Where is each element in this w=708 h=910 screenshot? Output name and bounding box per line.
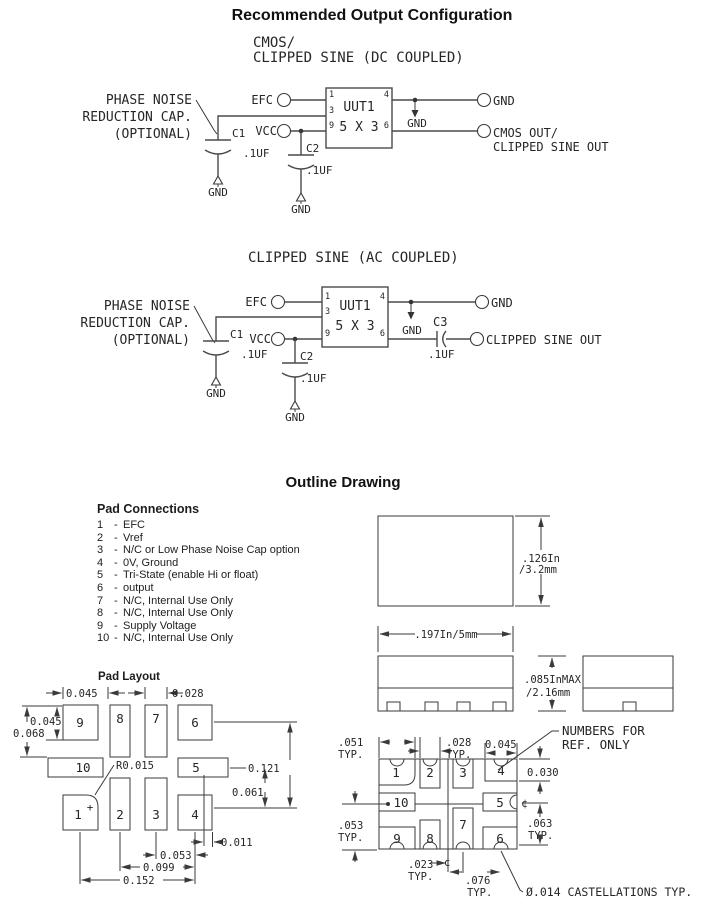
pad-desc: Vref <box>123 532 143 545</box>
dash: - <box>114 620 123 633</box>
pad-desc: 0V, Ground <box>123 557 178 570</box>
pad-1-number: 1 <box>74 807 82 822</box>
dim-pitch-b: 0.099 <box>143 862 175 874</box>
pin3-label: 3 <box>325 307 330 317</box>
dim-width: .197In/5mm <box>414 629 477 641</box>
pad-num: 6 <box>97 582 114 595</box>
dash: - <box>114 532 123 545</box>
c2-gnd-label: GND <box>291 203 311 216</box>
schematic-ac-drawing: EFC UUT1 5 X 3 1 3 9 4 6 C1 .1UF GND VCC <box>194 287 602 424</box>
pad-connection-row: 1-EFC <box>97 519 300 532</box>
junction-dot <box>409 300 414 305</box>
pad-5-number: 5 <box>192 760 200 775</box>
dim-045: 0.045 <box>485 739 517 751</box>
page-title: Recommended Output Configuration <box>18 7 708 25</box>
dash: - <box>114 632 123 645</box>
pad-connection-row: 9-Supply Voltage <box>97 620 300 633</box>
pad-num: 5 <box>97 569 114 582</box>
pad-10-number: 10 <box>393 795 408 810</box>
schematic-dc-coupled: CMOS/ CLIPPED SINE (DC COUPLED) PHASE NO… <box>0 30 708 237</box>
dim-063: .063 <box>527 818 552 830</box>
efc-label: EFC <box>251 93 273 107</box>
dim-051: .051 <box>338 737 363 749</box>
pad-2-number: 2 <box>426 765 434 780</box>
ac-note-line2: REDUCTION CAP. <box>80 316 190 331</box>
dim-thickness-in: .085InMAX <box>524 674 582 686</box>
efc-terminal <box>278 94 291 107</box>
gnd-terminal <box>476 296 489 309</box>
pin6-label: 6 <box>380 329 385 339</box>
c1-label: C1 <box>230 328 243 341</box>
pad-9-number: 9 <box>76 715 84 730</box>
pad-connection-row: 5-Tri-State (enable Hi or float) <box>97 569 300 582</box>
c2-value: .1UF <box>300 372 327 385</box>
dc-note-line3: (OPTIONAL) <box>114 127 192 142</box>
outline-views: .126In /3.2mm .197In/5mm .085InMAX /2.16… <box>360 510 708 720</box>
pin4-label: 4 <box>384 90 389 100</box>
dim-height-mm: /3.2mm <box>519 564 557 576</box>
pad-3-number: 3 <box>459 765 467 780</box>
c1-value: .1UF <box>241 348 268 361</box>
c2-label: C2 <box>306 142 319 155</box>
pad-3 <box>145 778 167 830</box>
pad-connection-row: 2-Vref <box>97 532 300 545</box>
pad-num: 9 <box>97 620 114 633</box>
c2-label: C2 <box>300 350 313 363</box>
dim-corner-radius: R0.015 <box>116 760 154 772</box>
pad-connection-row: 6-output <box>97 582 300 595</box>
dim-pitch-a: 0.053 <box>160 850 192 862</box>
ac-subtitle: CLIPPED SINE (AC COUPLED) <box>248 250 459 266</box>
pad-layout: Pad Layout 9 8 7 6 10 5 1 + 2 3 4 <box>0 665 320 910</box>
pad-connection-row: 3-N/C or Low Phase Noise Cap option <box>97 544 300 557</box>
pad-connections-heading: Pad Connections <box>97 502 300 516</box>
pad-7-number: 7 <box>459 817 467 832</box>
ground-symbol <box>214 176 223 184</box>
dim-pad-gap: 0.028 <box>172 688 204 700</box>
dim-076-typ: TYP. <box>467 887 492 899</box>
pad-connection-row: 4-0V, Ground <box>97 557 300 570</box>
dim-pitch-c: 0.152 <box>123 875 155 887</box>
uut-size-label: 5 X 3 <box>335 319 374 334</box>
output-terminal <box>478 125 491 138</box>
pad-desc: Tri-State (enable Hi or float) <box>123 569 258 582</box>
note-numbers-line2: REF. ONLY <box>562 737 630 752</box>
rail-gnd-label: GND <box>402 324 422 337</box>
pad-num: 3 <box>97 544 114 557</box>
dim-028-typ: TYP. <box>446 749 471 761</box>
uut-box <box>326 88 392 148</box>
package-side-view: .197In/5mm .085InMAX /2.16mm <box>378 626 673 711</box>
pad-desc: N/C or Low Phase Noise Cap option <box>123 544 300 557</box>
dc-subtitle-line1: CMOS/ <box>253 35 295 51</box>
dim-thickness-mm: /2.16mm <box>526 687 570 699</box>
c1-label: C1 <box>232 127 245 140</box>
dim-pad-height: 0.045 <box>30 716 62 728</box>
pad-8-number: 8 <box>116 711 124 726</box>
pin6-label: 6 <box>384 121 389 131</box>
pad-num: 4 <box>97 557 114 570</box>
c3-value: .1UF <box>428 348 455 361</box>
dc-output-label-line1: CMOS OUT/ <box>493 126 558 140</box>
dim-span-right: 0.121 <box>248 763 280 775</box>
dash: - <box>114 607 123 620</box>
pad-desc: N/C, Internal Use Only <box>123 632 233 645</box>
dc-note-line1: PHASE NOISE <box>106 93 192 108</box>
note-castellations: Ø.014 CASTELLATIONS TYP. <box>526 885 692 899</box>
dash: - <box>114 569 123 582</box>
dc-output-label-line2: CLIPPED SINE OUT <box>493 140 609 154</box>
pad-5-number: 5 <box>496 795 504 810</box>
pin3-label: 3 <box>329 106 334 116</box>
dim-pad-width: 0.045 <box>66 688 98 700</box>
package-top-view: .126In /3.2mm <box>378 516 560 606</box>
ground-symbol <box>297 193 306 201</box>
ground-symbol <box>291 401 300 409</box>
ground-symbol <box>212 377 221 385</box>
pad-layout-heading: Pad Layout <box>98 671 160 683</box>
vcc-label: VCC <box>249 332 271 346</box>
efc-label: EFC <box>245 295 267 309</box>
schematic-ac-coupled: CLIPPED SINE (AC COUPLED) PHASE NOISE RE… <box>0 245 708 437</box>
uut-label: UUT1 <box>339 299 370 314</box>
pad-desc: output <box>123 582 154 595</box>
pad-8-number: 8 <box>426 831 434 846</box>
c1-gnd-label: GND <box>206 387 226 400</box>
pin9-label: 9 <box>325 329 330 339</box>
pad-3-number: 3 <box>152 807 160 822</box>
pad-desc: Supply Voltage <box>123 620 196 633</box>
pad-1-number: 1 <box>392 765 400 780</box>
vcc-terminal <box>272 333 285 346</box>
pad-9-number: 9 <box>393 831 401 846</box>
pad-num: 2 <box>97 532 114 545</box>
dim-023: .023 <box>408 859 433 871</box>
dim-023-typ: TYP. <box>408 871 433 883</box>
pad-num: 1 <box>97 519 114 532</box>
c1-value: .1UF <box>243 147 270 160</box>
pad-desc: N/C, Internal Use Only <box>123 595 233 608</box>
rail-gnd-label: GND <box>407 117 427 130</box>
pad-connection-row: 7-N/C, Internal Use Only <box>97 595 300 608</box>
dim-span-mid: 0.061 <box>232 787 264 799</box>
pad-connections: Pad Connections 1-EFC 2-Vref 3-N/C or Lo… <box>97 502 300 645</box>
pad-desc: EFC <box>123 519 145 532</box>
dim-030: 0.030 <box>527 767 559 779</box>
gnd-terminal-label: GND <box>493 94 515 108</box>
pad-desc: N/C, Internal Use Only <box>123 607 233 620</box>
pad-10-leader-dot <box>386 802 390 806</box>
dash: - <box>114 519 123 532</box>
dim-028: .028 <box>446 737 471 749</box>
vcc-label: VCC <box>255 124 277 138</box>
efc-terminal <box>272 296 285 309</box>
junction-dot <box>413 98 418 103</box>
pad-6-number: 6 <box>191 715 199 730</box>
pad-4-number: 4 <box>191 807 199 822</box>
uut-box <box>322 287 388 347</box>
pin9-label: 9 <box>329 121 334 131</box>
pad-connection-row: 8-N/C, Internal Use Only <box>97 607 300 620</box>
dim-051-typ: TYP. <box>338 749 363 761</box>
pin1-label: 1 <box>325 292 330 302</box>
pad-6-number: 6 <box>496 831 504 846</box>
dc-note-line2: REDUCTION CAP. <box>82 110 192 125</box>
dash: - <box>114 544 123 557</box>
dash: - <box>114 595 123 608</box>
pad-2-number: 2 <box>116 807 124 822</box>
dim-076: .076 <box>465 875 490 887</box>
dim-offset: 0.011 <box>221 837 253 849</box>
schematic-dc-drawing: EFC UUT1 5 X 3 1 3 9 4 6 C1 .1UF GND VCC <box>196 88 609 216</box>
pad-num: 7 <box>97 595 114 608</box>
pad-7-number: 7 <box>152 711 160 726</box>
pin4-label: 4 <box>380 292 385 302</box>
uut-size-label: 5 X 3 <box>339 120 378 135</box>
pad-num: 8 <box>97 607 114 620</box>
outline-drawing-title: Outline Drawing <box>0 474 686 491</box>
vcc-terminal <box>278 125 291 138</box>
gnd-terminal-label: GND <box>491 296 513 310</box>
pad-1-polarity-mark: + <box>87 801 94 814</box>
pad-connection-row: 10-N/C, Internal Use Only <box>97 632 300 645</box>
ac-note-line1: PHASE NOISE <box>104 299 190 314</box>
pin1-label: 1 <box>329 90 334 100</box>
centerline-symbol-right: ¢ <box>521 797 528 810</box>
c2-gnd-label: GND <box>285 411 305 424</box>
ac-note-line3: (OPTIONAL) <box>112 333 190 348</box>
gnd-terminal <box>478 94 491 107</box>
c2-value: .1UF <box>306 164 333 177</box>
c3-label: C3 <box>433 315 447 329</box>
dash: - <box>114 582 123 595</box>
dash: - <box>114 557 123 570</box>
pad-4-number: 4 <box>497 763 505 778</box>
datasheet-page: Recommended Output Configuration CMOS/ C… <box>0 0 708 910</box>
gnd-arrow <box>408 312 415 320</box>
dim-053: .053 <box>338 820 363 832</box>
output-terminal <box>471 333 484 346</box>
package-bottom-view: 1 2 3 4 10 5 9 8 7 6 .051 TYP. .028 TYP. <box>330 715 708 910</box>
pad-5 <box>178 758 228 777</box>
pad-10-number: 10 <box>75 760 90 775</box>
dim-height-total: 0.068 <box>13 728 45 740</box>
c1-gnd-label: GND <box>208 186 228 199</box>
pad-num: 10 <box>97 632 114 645</box>
pad-2 <box>110 778 130 830</box>
uut-label: UUT1 <box>343 100 374 115</box>
ac-output-label: CLIPPED SINE OUT <box>486 333 602 347</box>
dc-subtitle-line2: CLIPPED SINE (DC COUPLED) <box>253 50 464 66</box>
note-numbers-line1: NUMBERS FOR <box>562 723 645 738</box>
dim-063-typ: TYP. <box>528 830 553 842</box>
dim-053-typ: TYP. <box>338 832 363 844</box>
